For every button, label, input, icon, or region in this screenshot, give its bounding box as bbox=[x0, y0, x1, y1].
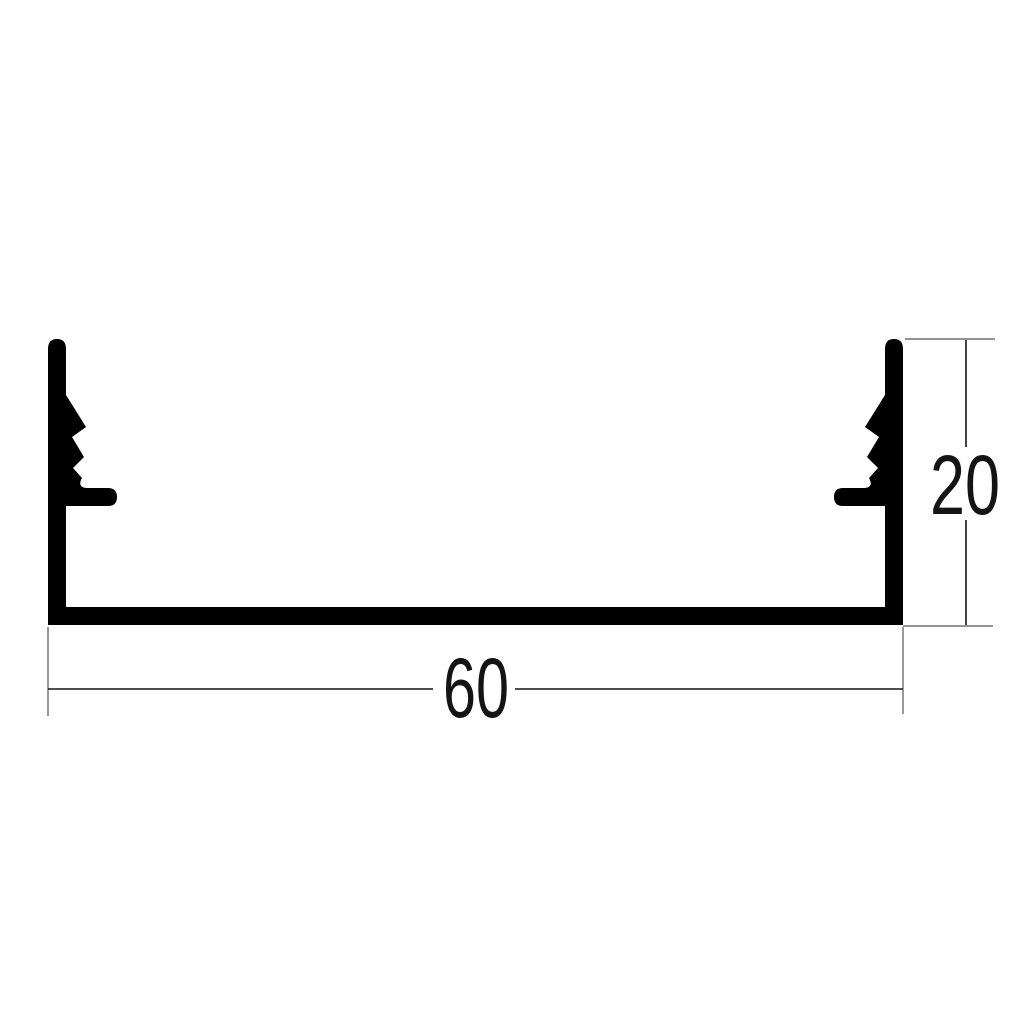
profile-cross-section bbox=[48, 339, 903, 625]
height-dimension-value: 20 bbox=[930, 438, 1000, 532]
width-dimension-value: 60 bbox=[443, 641, 509, 735]
dimension-height: 20 bbox=[903, 339, 1000, 626]
dimension-width: 60 bbox=[48, 627, 903, 735]
profile-drawing: 60 20 bbox=[0, 0, 1024, 1024]
